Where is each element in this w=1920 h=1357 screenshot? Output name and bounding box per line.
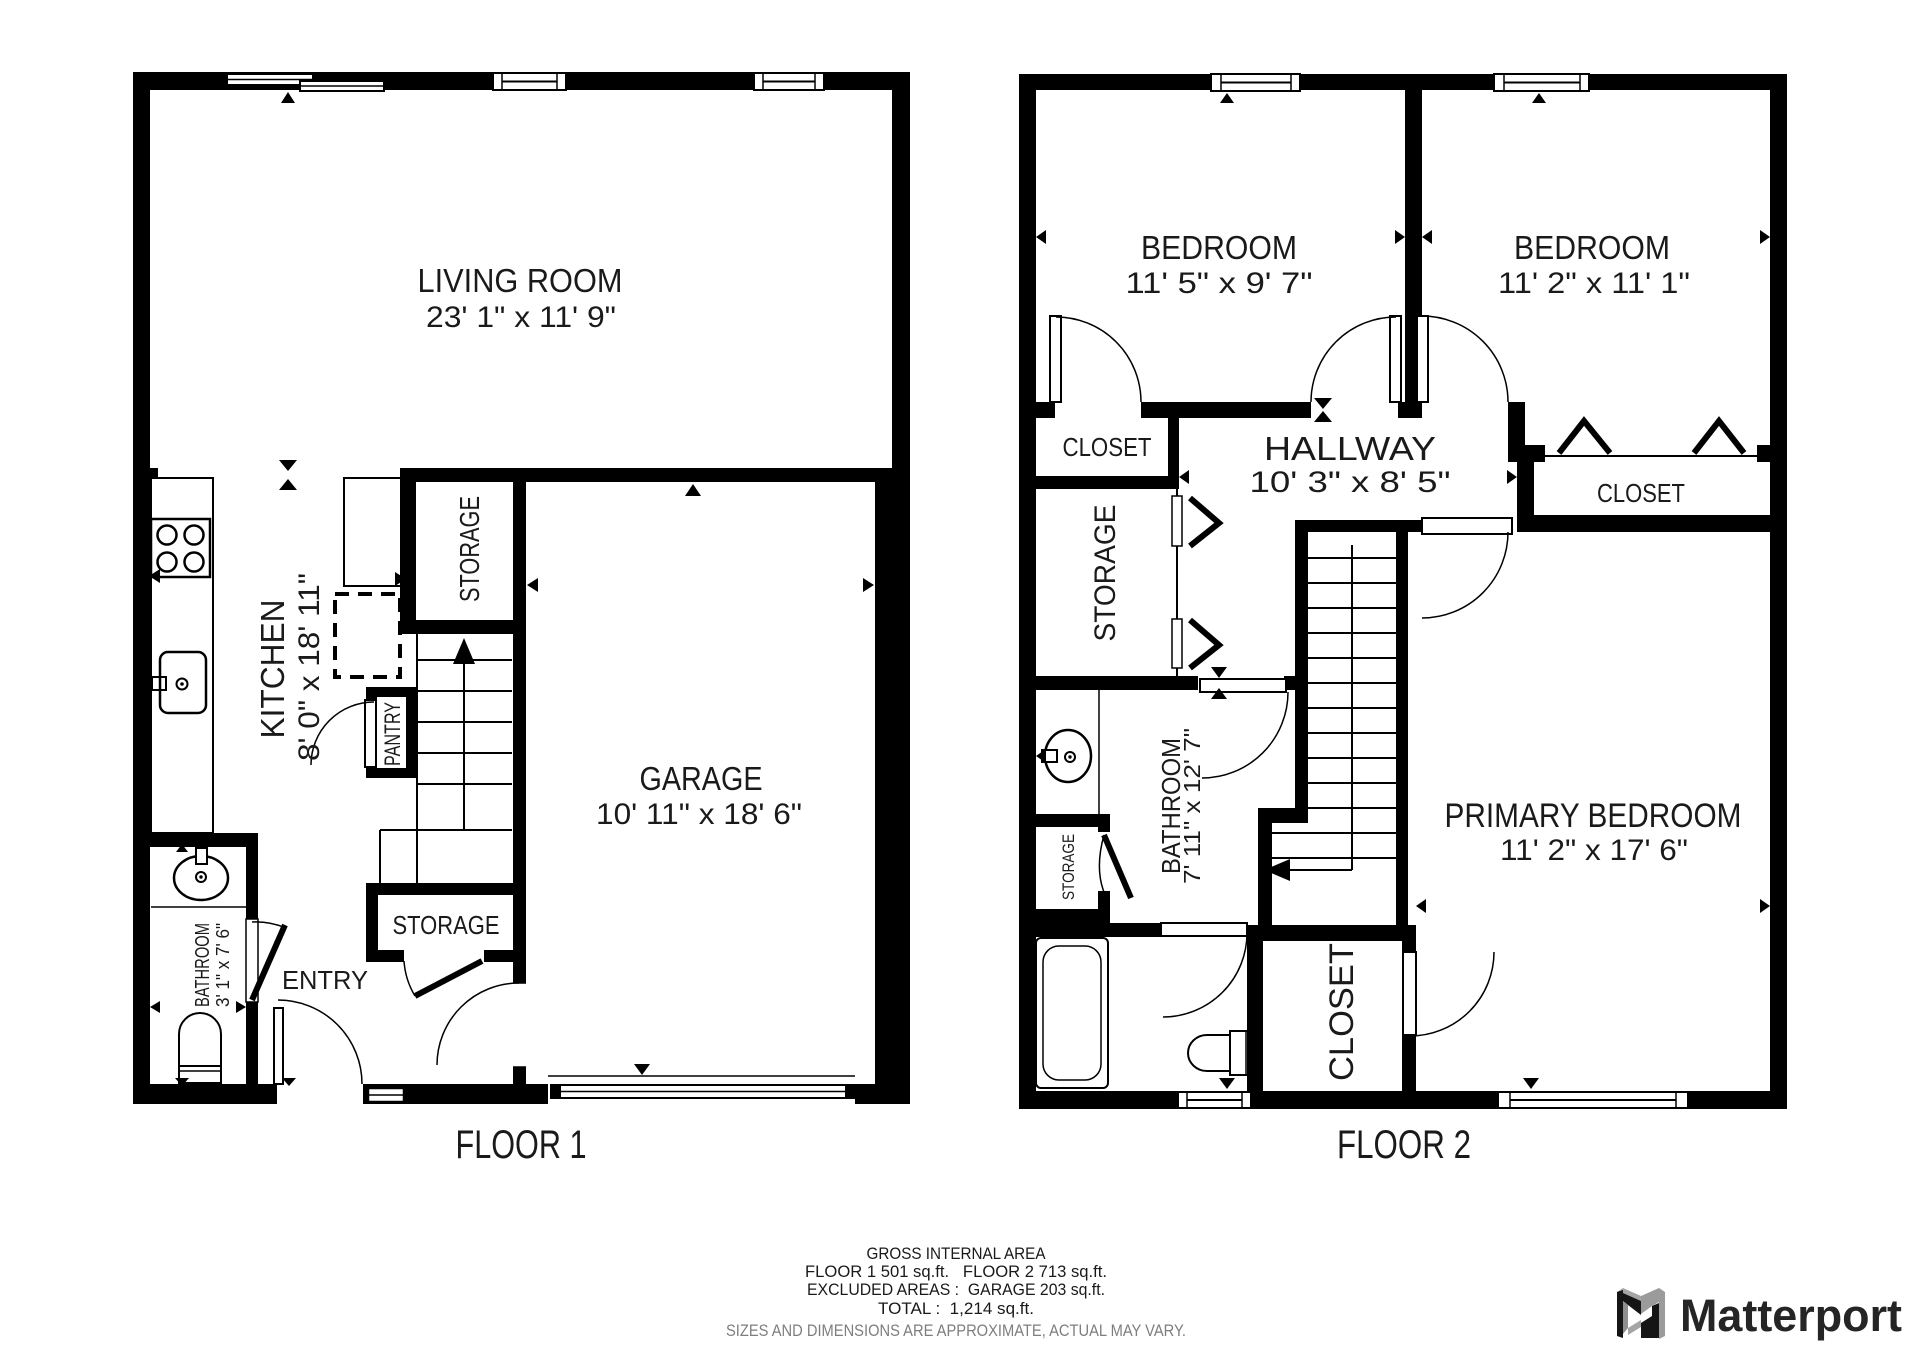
svg-text:11' 2" x 17' 6": 11' 2" x 17' 6": [1500, 834, 1688, 867]
svg-text:10' 11" x 18' 6": 10' 11" x 18' 6": [596, 798, 802, 831]
svg-text:PANTRY: PANTRY: [380, 702, 405, 766]
svg-text:7' 11" x 12' 7": 7' 11" x 12' 7": [1179, 728, 1205, 884]
svg-text:STORAGE: STORAGE: [1059, 834, 1078, 900]
svg-text:STORAGE: STORAGE: [393, 910, 500, 940]
svg-text:STORAGE: STORAGE: [454, 496, 485, 602]
svg-text:STORAGE: STORAGE: [1089, 505, 1122, 642]
svg-text:BEDROOM: BEDROOM: [1514, 229, 1670, 266]
svg-text:CLOSET: CLOSET: [1597, 478, 1685, 508]
svg-text:KITCHEN: KITCHEN: [254, 600, 291, 739]
svg-text:PRIMARY BEDROOM: PRIMARY BEDROOM: [1445, 797, 1742, 835]
svg-text:11' 5" x 9' 7": 11' 5" x 9' 7": [1126, 267, 1313, 300]
svg-text:23' 1" x 11' 9": 23' 1" x 11' 9": [426, 301, 616, 334]
svg-text:GROSS INTERNAL AREA: GROSS INTERNAL AREA: [867, 1244, 1047, 1263]
svg-text:LIVING ROOM: LIVING ROOM: [418, 262, 623, 299]
svg-text:HALLWAY: HALLWAY: [1264, 430, 1436, 467]
svg-text:FLOOR 2: FLOOR 2: [1337, 1123, 1471, 1167]
svg-text:BATHROOM: BATHROOM: [192, 923, 214, 1007]
svg-text:SIZES AND DIMENSIONS ARE APPRO: SIZES AND DIMENSIONS ARE APPROXIMATE, AC…: [726, 1321, 1186, 1340]
svg-text:FLOOR 1 501 sq.ft. FLOOR 2 7: FLOOR 1 501 sq.ft. FLOOR 2 713 sq.ft.: [805, 1262, 1107, 1281]
svg-text:3' 1" x 7' 6": 3' 1" x 7' 6": [213, 923, 233, 1007]
svg-text:11' 2" x 11' 1": 11' 2" x 11' 1": [1498, 267, 1690, 300]
svg-text:FLOOR 1: FLOOR 1: [456, 1123, 587, 1167]
svg-text:10' 3" x 8' 5": 10' 3" x 8' 5": [1250, 466, 1451, 499]
svg-text:Matterport: Matterport: [1680, 1290, 1902, 1341]
svg-text:CLOSET: CLOSET: [1323, 943, 1361, 1081]
svg-text:EXCLUDED AREAS : GARAGE 203 s: EXCLUDED AREAS : GARAGE 203 sq.ft.: [807, 1280, 1105, 1299]
svg-text:TOTAL : 1,214 sq.ft.: TOTAL : 1,214 sq.ft.: [878, 1299, 1034, 1318]
svg-text:BEDROOM: BEDROOM: [1141, 229, 1297, 266]
svg-text:ENTRY: ENTRY: [282, 965, 368, 995]
svg-text:CLOSET: CLOSET: [1063, 432, 1152, 462]
svg-text:8' 0" x 18' 11": 8' 0" x 18' 11": [293, 573, 326, 761]
svg-text:GARAGE: GARAGE: [640, 760, 763, 797]
